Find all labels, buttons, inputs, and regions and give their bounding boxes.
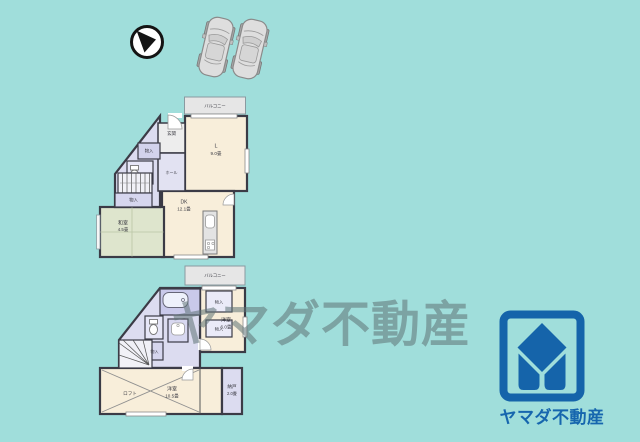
floorplan-sheet: バルコニー <box>0 0 640 442</box>
yamada-logo-icon <box>499 310 585 402</box>
balcony-window <box>191 114 237 118</box>
hall-label: ホール <box>166 170 178 175</box>
room-bedroom-main <box>100 368 222 414</box>
nando-size: 2.0畳 <box>227 391 237 396</box>
nando-label: 納戸 <box>227 383 237 390</box>
bay-window <box>97 215 101 249</box>
room-dk <box>162 191 234 257</box>
dk-window <box>174 255 208 259</box>
north-arrow-icon <box>127 22 167 62</box>
living-label: L <box>214 143 217 149</box>
floor1-plan: バルコニー <box>96 94 256 264</box>
storage-lower-label: 物入 <box>129 197 138 204</box>
floor2-balcony-label: バルコニー <box>204 273 225 278</box>
car-icon <box>194 15 237 79</box>
living-window <box>245 149 249 173</box>
car-icon <box>228 17 271 81</box>
washitsu-label: 和室 <box>118 219 128 226</box>
washitsu-size: 4.5畳 <box>118 227 129 232</box>
floor2-stairs <box>119 340 152 368</box>
kitchen-counter-icon <box>203 211 217 254</box>
genkan-label: 玄関 <box>167 130 176 137</box>
storage-upper-label: 物入 <box>145 148 154 155</box>
bedroom-main-window <box>126 412 166 416</box>
toilet-tank-icon <box>131 166 139 171</box>
watermark-text: ヤマダ不動産 <box>171 301 471 350</box>
bedroom-main-label: 洋室 <box>167 385 177 392</box>
toilet-tank-icon <box>150 320 158 325</box>
floor1-stairs <box>118 173 152 193</box>
loft-label: ロフト <box>123 391 137 396</box>
parking-cars-icon <box>193 10 277 86</box>
dk-label: DK <box>181 199 189 205</box>
balcony-window2 <box>202 286 236 290</box>
logo-brand-text: ヤマダ不動産 <box>494 403 610 428</box>
floor1-balcony: バルコニー <box>185 97 246 114</box>
room-toilet2 <box>145 316 163 339</box>
closet3-label: 物入 <box>151 348 159 354</box>
floor2-balcony: バルコニー <box>185 266 245 285</box>
floor1-balcony-label: バルコニー <box>204 104 225 109</box>
toilet-bowl-icon <box>150 325 158 335</box>
